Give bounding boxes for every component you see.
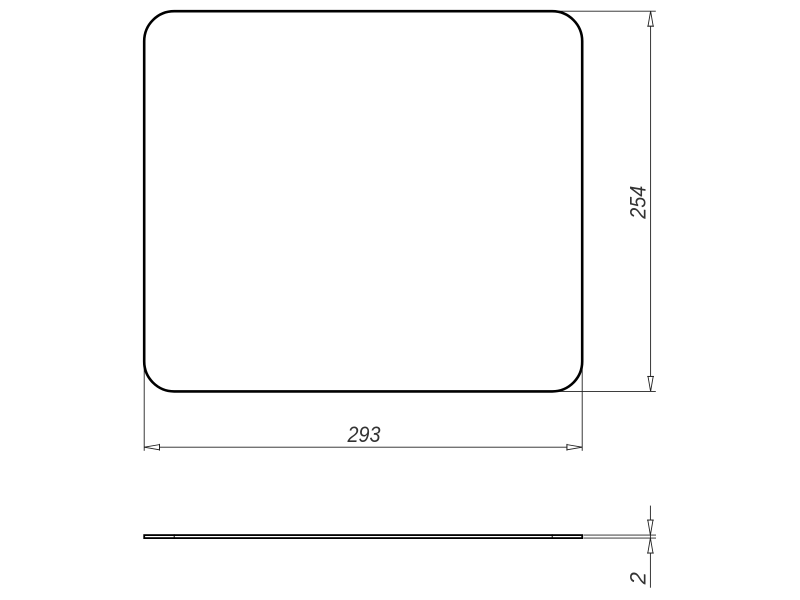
svg-text:293: 293 <box>347 422 382 447</box>
svg-text:254: 254 <box>625 186 650 220</box>
svg-text:2: 2 <box>625 572 650 585</box>
